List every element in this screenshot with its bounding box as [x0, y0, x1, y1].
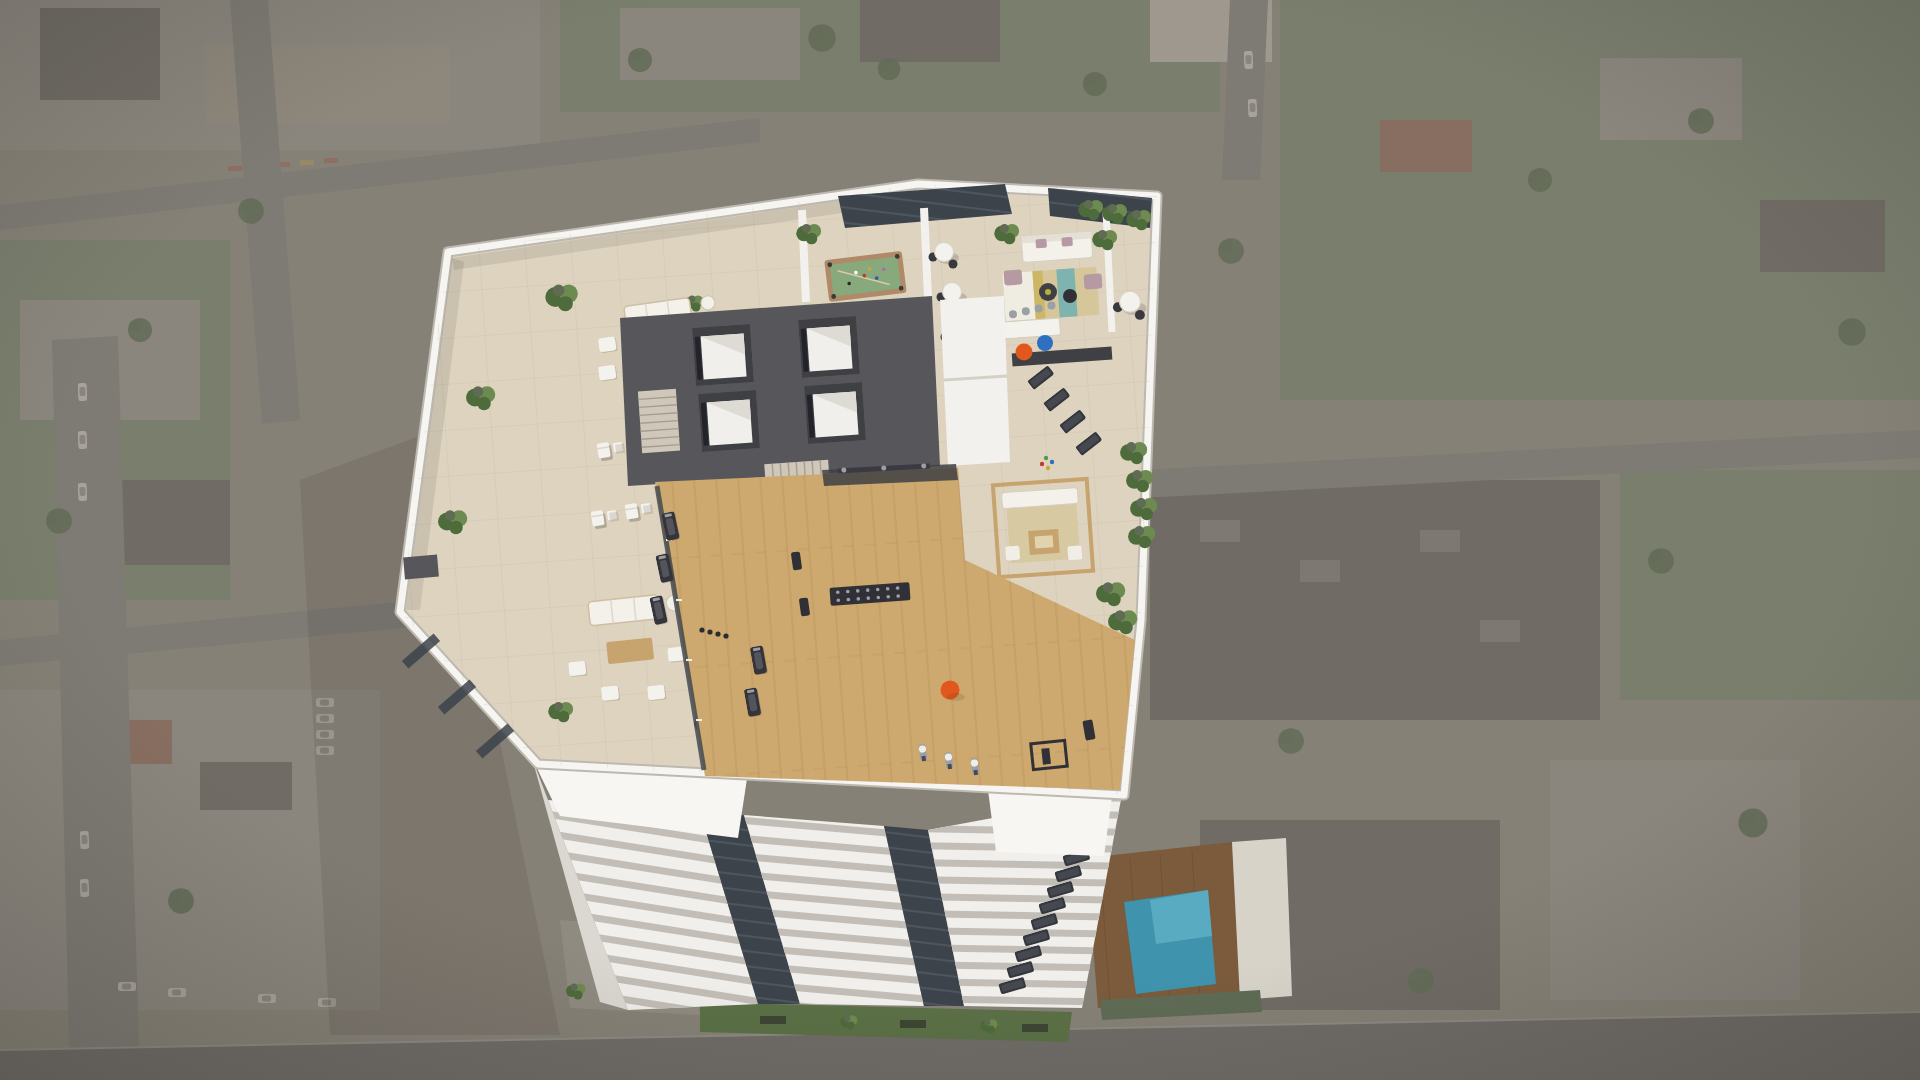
aerial-render: { "scene": { "subject": "Aerial 3D rende… [0, 0, 1920, 1080]
vignette [0, 0, 1920, 1080]
scene-canvas: Aerial 3D rendering of a white residenti… [0, 0, 1920, 1080]
